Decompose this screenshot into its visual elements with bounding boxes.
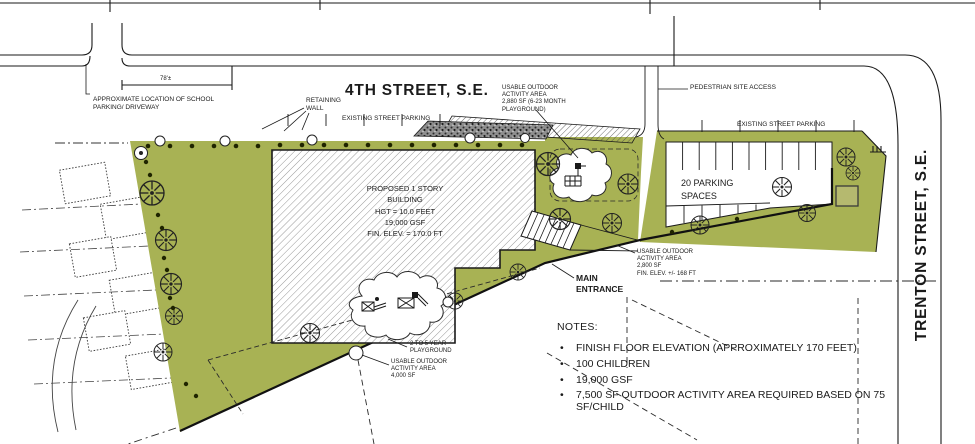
bullet: • [560,359,567,371]
tree-icon [846,166,860,180]
tree-icon [140,181,164,205]
retaining-wall-label: RETAINING WALL [306,97,341,113]
bullet: • [560,343,567,355]
note-text: FINISH FLOOR ELEVATION (APPROXIMATELY 17… [576,343,857,355]
pedestrian-site-access-label: PEDESTRIAN SITE ACCESS [690,84,776,92]
trenton-street-title: TRENTON STREET, S.E. [913,149,930,341]
note-item: • 100 CHILDREN [560,359,960,371]
pedestrian-path [636,66,664,139]
fourth-street-title: 4TH STREET, S.E. [345,82,489,101]
tree-icon [161,274,182,295]
main-entrance-label: MAIN ENTRANCE [576,273,623,295]
existing-street-parking-west-label: EXISTING STREET PARKING [342,115,430,123]
bullet: • [560,375,567,387]
infant-playground-cloud [550,148,612,201]
tree-icon [799,205,816,222]
note-item: • FINISH FLOOR ELEVATION (APPROXIMATELY … [560,343,960,355]
bullet: • [560,390,567,414]
notes-list: • FINISH FLOOR ELEVATION (APPROXIMATELY … [560,343,960,418]
playground-2-5-label: 2 TO 5 YEAR PLAYGROUND [410,341,452,355]
note-text: 7,500 SF OUTDOOR ACTIVITY AREA REQUIRED … [576,390,885,414]
outdoor-area-south-label: USABLE OUTDOOR ACTIVITY AREA 4,000 SF [391,359,447,381]
parking-spaces-label: 20 PARKING SPACES [681,177,733,203]
tree-icon [603,214,622,233]
tree-icon [618,174,638,194]
tree-icon [166,308,183,325]
tree-icon [156,230,177,251]
tree-icon [691,216,709,234]
driveway-dimension-label: 78'± [160,76,171,83]
trenton-street-title-wrap: TRENTON STREET, S.E. [913,130,931,360]
outdoor-area-infant-label: USABLE OUTDOOR ACTIVITY AREA 2,880 SF (6… [502,85,566,114]
tree-icon [154,343,172,361]
note-text: 100 CHILDREN [576,359,650,371]
tree-icon [510,264,526,280]
school-parking-label: APPROXIMATE LOCATION OF SCHOOL PARKING/ … [93,96,214,112]
tree-icon [537,153,560,176]
site-plan-drawing: APPROXIMATE LOCATION OF SCHOOL PARKING/ … [0,0,975,444]
note-item: • 19,000 GSF [560,375,960,387]
note-item: • 7,500 SF OUTDOOR ACTIVITY AREA REQUIRE… [560,390,960,414]
utility-pad [836,186,858,206]
existing-street-parking-east-label: EXISTING STREET PARKING [737,121,825,129]
tree-icon [773,178,792,197]
tree-icon [837,148,855,166]
building-label: PROPOSED 1 STORY BUILDING HGT = 10.0 FEE… [335,183,475,239]
tree-icon [550,209,571,230]
tree-icon [301,324,320,343]
note-text: 19,000 GSF [576,375,633,387]
outdoor-area-east-label: USABLE OUTDOOR ACTIVITY AREA 2,800 SF FI… [637,249,696,278]
notes-title: NOTES: [557,321,598,334]
